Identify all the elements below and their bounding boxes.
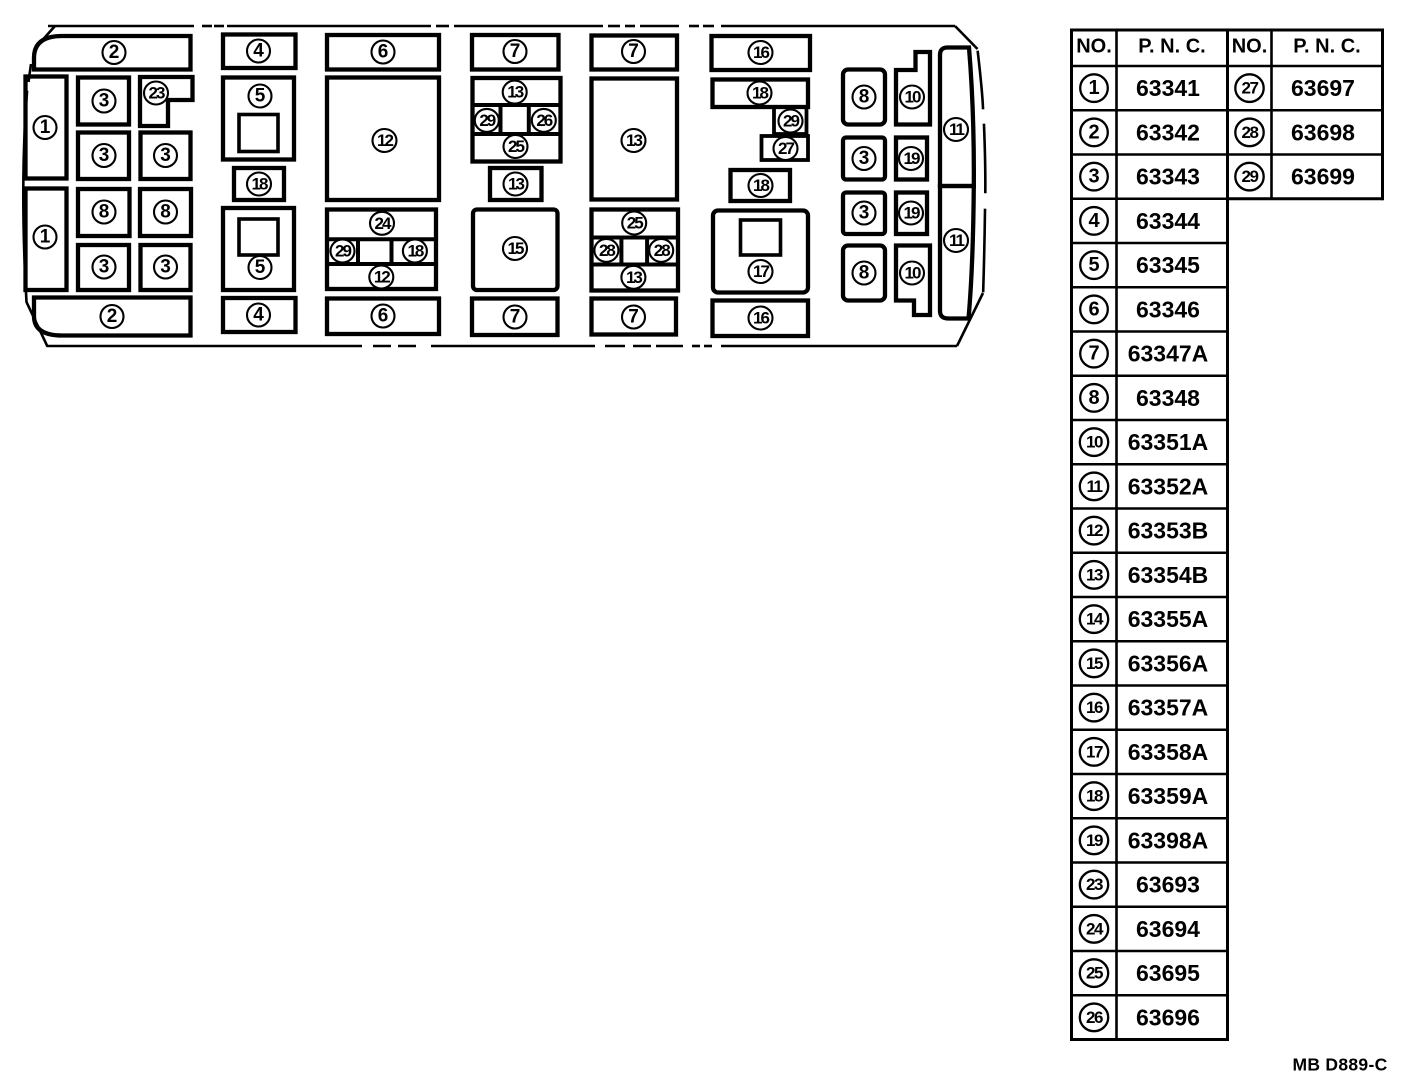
svg-text:3: 3 bbox=[160, 257, 171, 278]
svg-text:7: 7 bbox=[628, 41, 639, 62]
svg-text:3: 3 bbox=[99, 257, 110, 278]
svg-text:29: 29 bbox=[335, 242, 351, 261]
svg-text:28: 28 bbox=[654, 241, 670, 260]
svg-text:4: 4 bbox=[253, 305, 264, 326]
svg-text:26: 26 bbox=[1086, 1008, 1103, 1027]
svg-text:25: 25 bbox=[508, 137, 524, 156]
svg-text:15: 15 bbox=[508, 239, 524, 258]
svg-text:28: 28 bbox=[599, 241, 615, 260]
svg-text:63345: 63345 bbox=[1136, 252, 1200, 278]
svg-text:24: 24 bbox=[375, 214, 392, 233]
svg-text:63693: 63693 bbox=[1136, 872, 1200, 898]
svg-text:10: 10 bbox=[1086, 433, 1103, 452]
svg-text:18: 18 bbox=[753, 176, 769, 195]
svg-text:16: 16 bbox=[753, 43, 769, 62]
svg-text:63358A: 63358A bbox=[1128, 739, 1209, 765]
svg-text:63351A: 63351A bbox=[1128, 429, 1209, 455]
svg-text:3: 3 bbox=[1088, 166, 1099, 188]
svg-text:18: 18 bbox=[252, 175, 268, 194]
svg-text:63348: 63348 bbox=[1136, 385, 1200, 411]
svg-text:25: 25 bbox=[1086, 964, 1103, 983]
svg-text:8: 8 bbox=[99, 202, 110, 223]
svg-text:18: 18 bbox=[1086, 787, 1103, 806]
svg-text:2: 2 bbox=[1088, 121, 1099, 143]
svg-text:8: 8 bbox=[160, 202, 171, 223]
svg-text:13: 13 bbox=[626, 268, 642, 287]
svg-text:13: 13 bbox=[626, 131, 642, 150]
svg-text:12: 12 bbox=[1086, 521, 1103, 540]
svg-text:18: 18 bbox=[407, 242, 423, 261]
svg-text:2: 2 bbox=[109, 42, 120, 63]
svg-text:63341: 63341 bbox=[1136, 75, 1200, 101]
svg-text:27: 27 bbox=[778, 139, 794, 158]
svg-text:63695: 63695 bbox=[1136, 960, 1200, 986]
svg-text:29: 29 bbox=[479, 111, 495, 130]
svg-text:11: 11 bbox=[949, 231, 965, 250]
svg-text:63359A: 63359A bbox=[1128, 783, 1209, 809]
svg-text:23: 23 bbox=[1086, 875, 1103, 894]
svg-text:1: 1 bbox=[40, 227, 51, 248]
svg-text:4: 4 bbox=[253, 41, 264, 62]
svg-text:17: 17 bbox=[1086, 742, 1103, 761]
svg-text:5: 5 bbox=[1088, 254, 1099, 276]
svg-text:3: 3 bbox=[859, 148, 870, 169]
svg-text:13: 13 bbox=[1086, 565, 1103, 584]
svg-text:P. N. C.: P. N. C. bbox=[1293, 36, 1360, 58]
svg-text:19: 19 bbox=[1086, 831, 1103, 850]
svg-text:63342: 63342 bbox=[1136, 119, 1200, 145]
svg-text:7: 7 bbox=[628, 307, 639, 328]
svg-text:63354B: 63354B bbox=[1128, 562, 1209, 588]
svg-text:16: 16 bbox=[1086, 698, 1103, 717]
svg-text:10: 10 bbox=[905, 88, 921, 107]
svg-text:13: 13 bbox=[508, 175, 524, 194]
svg-text:63344: 63344 bbox=[1136, 208, 1200, 234]
svg-text:8: 8 bbox=[1088, 387, 1099, 409]
svg-text:MB D889-C: MB D889-C bbox=[1292, 1055, 1387, 1075]
svg-text:63398A: 63398A bbox=[1128, 827, 1209, 853]
svg-text:5: 5 bbox=[255, 257, 266, 278]
svg-text:63346: 63346 bbox=[1136, 296, 1200, 322]
svg-text:3: 3 bbox=[99, 91, 110, 112]
svg-text:17: 17 bbox=[753, 262, 769, 281]
svg-text:63356A: 63356A bbox=[1128, 650, 1209, 676]
svg-text:3: 3 bbox=[99, 145, 110, 166]
svg-text:24: 24 bbox=[1086, 919, 1104, 938]
svg-text:63353B: 63353B bbox=[1128, 518, 1209, 544]
svg-text:27: 27 bbox=[1242, 79, 1259, 98]
svg-text:8: 8 bbox=[859, 263, 870, 284]
svg-text:NO.: NO. bbox=[1232, 36, 1268, 58]
svg-text:13: 13 bbox=[507, 83, 523, 102]
svg-text:1: 1 bbox=[40, 117, 51, 138]
svg-text:12: 12 bbox=[374, 268, 390, 287]
svg-text:4: 4 bbox=[1088, 210, 1100, 232]
svg-text:63343: 63343 bbox=[1136, 164, 1200, 190]
svg-text:6: 6 bbox=[378, 42, 389, 63]
svg-text:19: 19 bbox=[904, 149, 920, 168]
svg-text:3: 3 bbox=[859, 203, 870, 224]
svg-text:63357A: 63357A bbox=[1128, 695, 1209, 721]
svg-text:29: 29 bbox=[1242, 167, 1259, 186]
svg-text:18: 18 bbox=[752, 84, 768, 103]
svg-text:63696: 63696 bbox=[1136, 1004, 1200, 1030]
svg-text:63698: 63698 bbox=[1291, 119, 1355, 145]
svg-text:8: 8 bbox=[859, 87, 870, 108]
svg-text:6: 6 bbox=[378, 306, 389, 327]
svg-text:3: 3 bbox=[160, 145, 171, 166]
svg-text:63694: 63694 bbox=[1136, 916, 1200, 942]
svg-text:12: 12 bbox=[377, 131, 393, 150]
svg-text:16: 16 bbox=[753, 309, 769, 328]
svg-text:7: 7 bbox=[510, 41, 521, 62]
svg-text:1: 1 bbox=[1088, 77, 1099, 99]
svg-text:19: 19 bbox=[904, 204, 920, 223]
svg-text:7: 7 bbox=[510, 307, 521, 328]
svg-text:NO.: NO. bbox=[1076, 36, 1112, 58]
svg-text:15: 15 bbox=[1086, 654, 1103, 673]
svg-text:11: 11 bbox=[949, 120, 965, 139]
svg-text:63699: 63699 bbox=[1291, 164, 1355, 190]
svg-text:63352A: 63352A bbox=[1128, 473, 1209, 499]
svg-text:7: 7 bbox=[1088, 343, 1099, 365]
svg-text:63347A: 63347A bbox=[1128, 341, 1209, 367]
svg-text:11: 11 bbox=[1087, 477, 1103, 496]
svg-text:29: 29 bbox=[783, 112, 799, 131]
svg-text:63355A: 63355A bbox=[1128, 606, 1209, 632]
svg-text:26: 26 bbox=[536, 111, 552, 130]
svg-text:14: 14 bbox=[1086, 610, 1104, 629]
svg-text:6: 6 bbox=[1088, 298, 1099, 320]
svg-text:P. N. C.: P. N. C. bbox=[1138, 36, 1205, 58]
svg-text:5: 5 bbox=[255, 86, 266, 107]
svg-text:28: 28 bbox=[1242, 123, 1259, 142]
svg-text:23: 23 bbox=[149, 84, 165, 103]
svg-text:63697: 63697 bbox=[1291, 75, 1355, 101]
svg-text:10: 10 bbox=[905, 264, 921, 283]
svg-text:2: 2 bbox=[107, 306, 118, 327]
svg-text:25: 25 bbox=[627, 214, 643, 233]
